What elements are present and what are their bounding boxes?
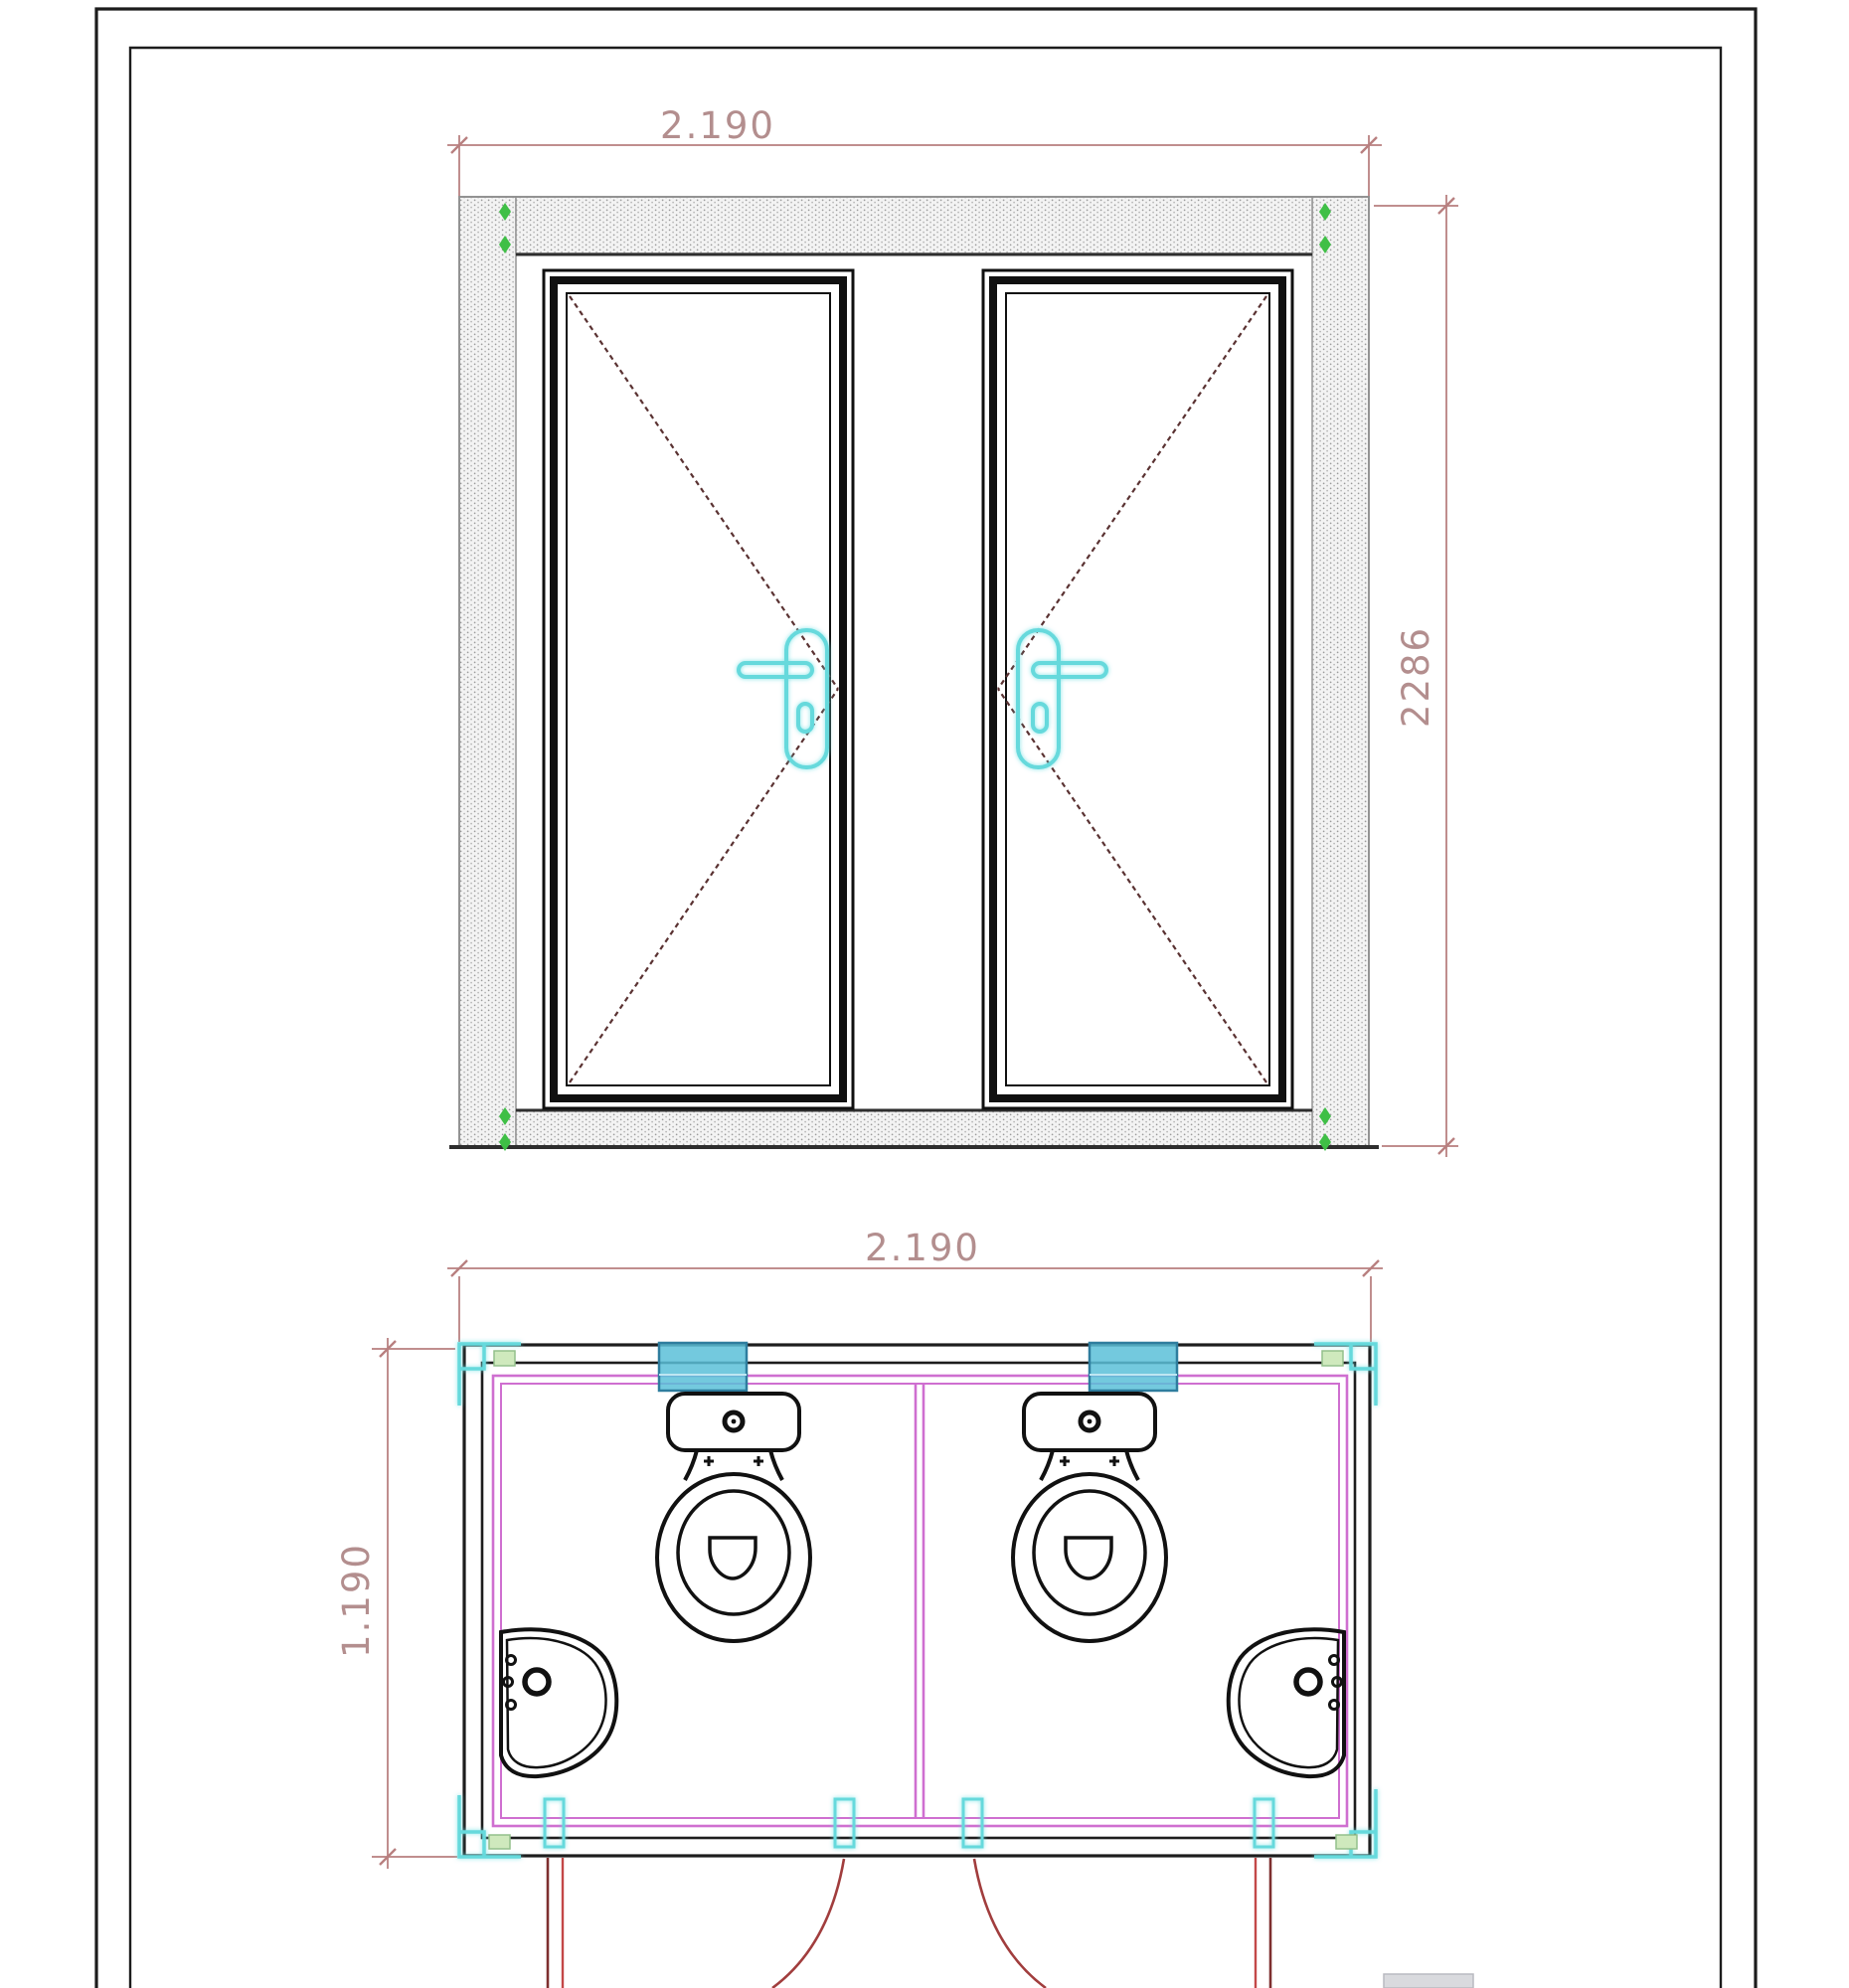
toilet-left-icon [657,1394,810,1641]
elevation-door-left [544,270,853,1108]
plan-width-label: 2.190 [865,1227,980,1269]
door-handle-left-icon [739,630,827,767]
drawing-canvas: 2.190 2286 [0,0,1849,1988]
elevation-frame [449,197,1379,1148]
plan-depth-dimension: 1.190 [335,1338,457,1869]
plan-walls [464,1345,1370,1856]
elevation-height-label: 2286 [1395,626,1437,728]
door-swing-right [974,1858,1270,1988]
elevation-width-label: 2.190 [660,104,775,147]
door-jamb-tabs [545,1799,1273,1847]
plan-depth-label: 1.190 [335,1543,378,1658]
page-border-inner [130,48,1721,1988]
door-swing-diagonal-right [998,296,1266,1082]
page-border-outer [96,9,1756,1988]
frame-corner-markers [499,203,1331,1151]
elevation-width-dimension: 2.190 [447,104,1382,197]
elevation-view: 2.190 2286 [447,104,1458,1157]
elevation-door-right [983,270,1292,1108]
door-swing-left [548,1858,844,1988]
cropped-titleblock-fragment [1384,1974,1473,1988]
door-handle-right-icon [1018,630,1106,767]
washbasin-left-icon [501,1629,616,1776]
elevation-height-dimension: 2286 [1374,195,1458,1157]
corner-brackets [459,1344,1376,1857]
plan-view: 2.190 1.190 [335,1227,1473,1988]
door-swing-diagonal-left [570,296,838,1082]
toilet-right-icon [1013,1394,1166,1641]
plan-width-dimension: 2.190 [447,1227,1383,1342]
center-partition-wall [916,1384,924,1818]
washbasin-right-icon [1229,1629,1344,1776]
